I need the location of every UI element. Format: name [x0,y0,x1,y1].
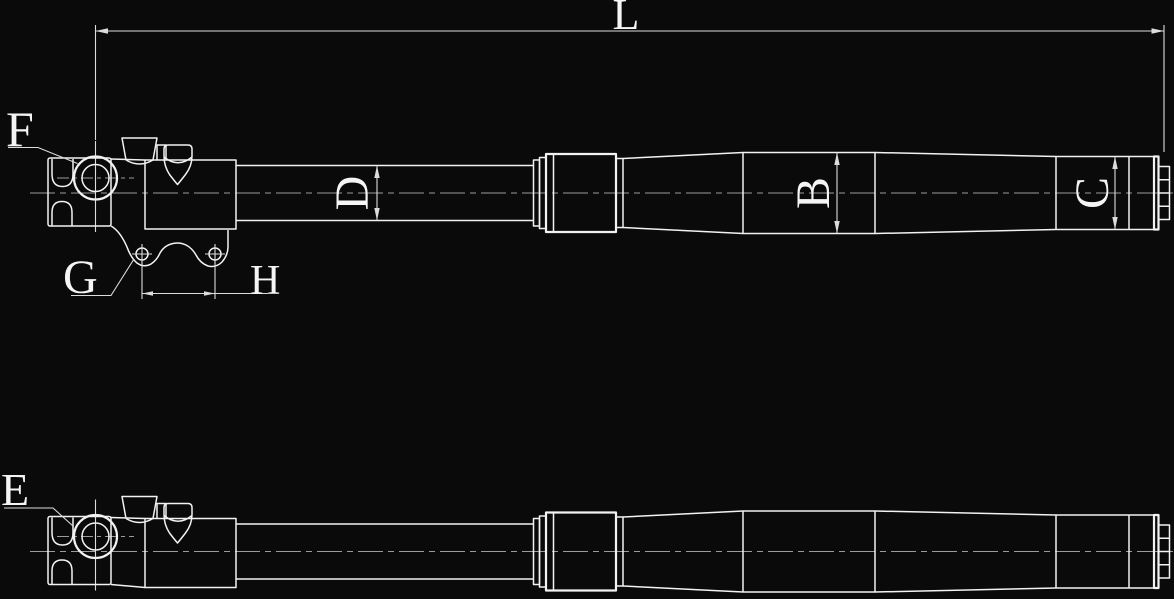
h-arrow-left [142,291,153,295]
leader-G: G [63,251,134,304]
label-E: E [1,464,29,515]
damper-unit [30,138,1174,234]
label-C: C [1066,177,1119,209]
taper-top [875,511,1056,515]
clamp-lug-bottom [52,202,72,227]
top-view: L F G H D B [6,0,1174,304]
damper-body [145,160,236,229]
head-bottom-edge [111,585,145,588]
top-view-part [30,138,1174,234]
bracket-outline [111,226,228,267]
mounting-bracket [111,226,228,267]
clamp-lug-top [52,518,73,546]
dimension-C: C [1066,157,1119,230]
damper-body [145,519,236,588]
shock-absorber-drawing: L F G H D B [0,0,1174,599]
label-H: H [250,258,280,304]
leader-F: F [6,101,78,164]
head-top-edge [111,518,145,519]
cone-bottom [623,586,743,592]
cone-bottom [623,228,743,234]
clamp-lug-top [52,159,73,187]
bottom-view: E [1,464,1174,592]
label-D: D [326,176,379,211]
cad-canvas: L F G H D B [0,0,1174,599]
end-stub-ribs [1159,525,1170,578]
cone-top [623,153,743,159]
valve-knob [164,504,192,544]
taper-top [875,153,1056,157]
valve-knob [164,145,192,185]
bottom-view-part [30,497,1174,593]
dimension-H: H [142,258,280,304]
adjuster-knob [122,497,157,519]
leader-E: E [1,464,73,526]
h-arrow-right [204,291,215,295]
label-B: B [787,177,840,209]
cone-top [623,511,743,517]
dimension-D: D [326,166,379,221]
damper-unit [30,497,1174,593]
taper-bottom [875,588,1056,592]
head-top-edge [111,159,145,160]
end-stub-ribs [1159,167,1170,220]
dimension-B: B [787,153,840,234]
clamp-lug-bottom [52,560,72,585]
label-F: F [6,101,34,157]
dimension-L: L [96,0,1165,152]
adjuster-knob [122,138,157,160]
label-L: L [613,0,640,39]
taper-bottom [875,230,1056,234]
